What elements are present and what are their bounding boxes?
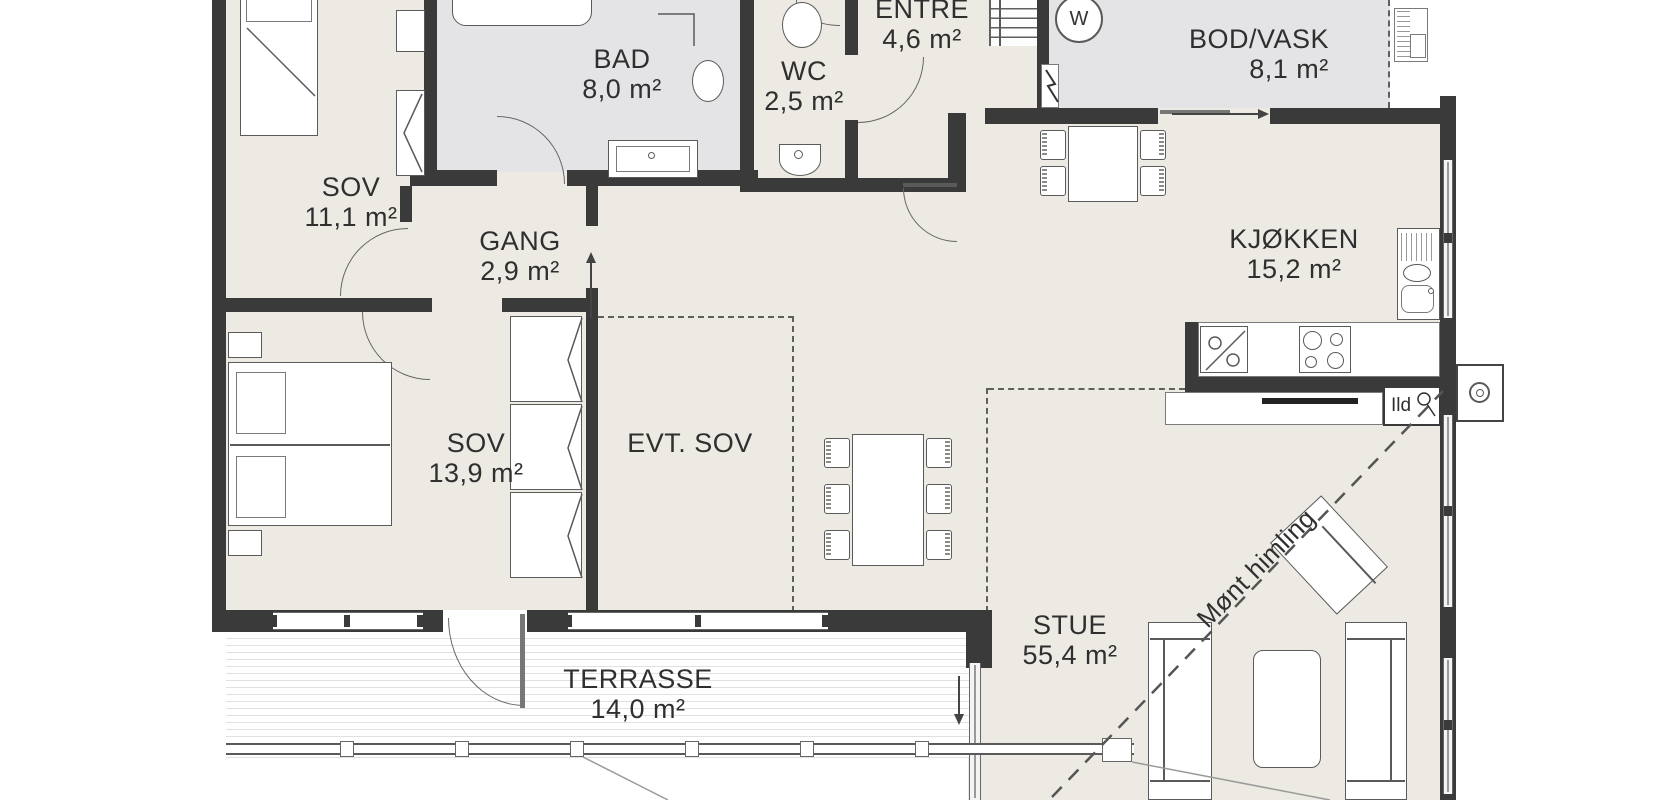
- burner: [1327, 352, 1344, 369]
- room-area: 13,9 m²: [428, 458, 523, 488]
- room-area: 11,1 m²: [304, 202, 397, 232]
- terrasse-arrow-line: [958, 676, 960, 716]
- terrasse-arrow-head: [954, 714, 964, 725]
- sofa-arm: [1347, 638, 1405, 640]
- window-mullion: [566, 615, 572, 627]
- wall-sov-divider-b: [502, 298, 586, 312]
- dresser: [396, 10, 425, 52]
- floor-plan: W Ild: [0, 0, 1670, 800]
- room-name: GANG: [479, 226, 561, 256]
- evt-sov-dashed-top: [598, 316, 794, 318]
- wardrobe: [396, 90, 425, 176]
- chair: [824, 438, 850, 468]
- chair: [1140, 130, 1166, 160]
- sofa-arm: [1150, 780, 1210, 782]
- washing-machine-label: W: [1070, 8, 1089, 31]
- wall-wc-east-bottom: [845, 120, 858, 192]
- railing-post: [570, 741, 584, 757]
- laundry-basin: [1410, 34, 1426, 58]
- nightstand: [228, 530, 262, 556]
- sink-drainer: [1401, 233, 1436, 261]
- wc-sink: [779, 144, 821, 176]
- room-label-sov2: SOV 13,9 m²: [428, 428, 523, 488]
- sofa-back: [1163, 640, 1165, 782]
- wall-kitchen-stub: [1185, 322, 1198, 392]
- wall-sov-divider-a: [218, 298, 432, 312]
- gang-arrow-line: [590, 262, 592, 318]
- fireplace-hearth: Ild: [1383, 386, 1441, 426]
- room-name: EVT. SOV: [627, 428, 753, 458]
- room-name: WC: [764, 56, 844, 86]
- room-name: BAD: [582, 44, 662, 74]
- railing-end-post: [1102, 738, 1132, 762]
- room-name: BOD/VASK: [1189, 24, 1329, 54]
- room-area: 2,9 m²: [479, 256, 561, 286]
- room-label-kjokken: KJØKKEN 15,2 m²: [1229, 224, 1359, 284]
- glazing-line: [974, 665, 976, 798]
- wall-stue-corner: [966, 610, 992, 668]
- window-mullion: [695, 615, 701, 627]
- sofa: [1345, 622, 1407, 800]
- sofa-back: [1390, 640, 1392, 782]
- wall-hall-west: [948, 113, 966, 178]
- wardrobe: [510, 316, 582, 402]
- burner: [1303, 331, 1322, 350]
- chair: [824, 530, 850, 560]
- bed-pillow: [236, 372, 286, 434]
- wall-gang-stub: [586, 186, 598, 226]
- sofa: [1148, 622, 1212, 800]
- room-area: 8,1 m²: [1219, 54, 1359, 84]
- room-name: KJØKKEN: [1229, 224, 1359, 254]
- dining-table: [852, 434, 924, 566]
- room-label-sov1: SOV 11,1 m²: [304, 172, 397, 232]
- chair: [1040, 130, 1066, 160]
- terrasse-railing: [226, 743, 1134, 755]
- toilet: [782, 2, 822, 48]
- wall-wc-east-top: [845, 0, 858, 55]
- window-mullion: [344, 615, 350, 627]
- sink-basin-round: [1403, 264, 1431, 282]
- bed-pillow: [246, 0, 312, 22]
- wall-bod-kitchen-a: [985, 108, 1158, 124]
- kitchen-stue-dashed: [988, 388, 1185, 390]
- wall-sov1-gang: [400, 186, 412, 222]
- coffee-table: [1253, 650, 1321, 768]
- room-label-bad: BAD 8,0 m²: [582, 44, 662, 104]
- window-mullion: [417, 615, 423, 627]
- wardrobe: [510, 492, 582, 578]
- bed-split: [230, 444, 390, 446]
- bathtub: [452, 0, 592, 26]
- washbasin: [692, 60, 724, 102]
- room-label-entre: ENTRE 4,6 m²: [875, 0, 969, 54]
- evt-sov-dashed-right: [792, 316, 794, 612]
- dishwasher: [1200, 326, 1248, 373]
- room-name: TERRASSE: [563, 664, 713, 694]
- room-area: 8,0 m²: [582, 74, 662, 104]
- wall-wc-west: [740, 0, 754, 186]
- staircase: [989, 0, 1037, 46]
- room-name: SOV: [428, 428, 523, 458]
- room-label-bod-vask: BOD/VASK 8,1 m²: [1189, 24, 1329, 84]
- room-name: ENTRE: [875, 0, 969, 24]
- window-mullion: [271, 615, 277, 627]
- door-leaf-terrasse: [520, 614, 525, 708]
- room-name: SOV: [304, 172, 397, 202]
- railing-post: [800, 741, 814, 757]
- room-area: 15,2 m²: [1229, 254, 1359, 284]
- terrasse-step-line: [583, 757, 668, 800]
- fireplace-label: Ild: [1391, 395, 1411, 417]
- nightstand: [228, 332, 262, 358]
- chair: [926, 438, 952, 468]
- burner: [1330, 333, 1343, 346]
- room-area: 55,4 m²: [1022, 640, 1117, 670]
- burner: [1305, 356, 1317, 368]
- wall-bod-kitchen-b: [1270, 108, 1456, 124]
- wall-gang-east: [586, 288, 598, 612]
- room-area: 4,6 m²: [875, 24, 969, 54]
- window-mullion: [1444, 720, 1452, 730]
- tv: [1262, 398, 1358, 404]
- chair: [824, 484, 850, 514]
- chimney-flue-inner: [1476, 389, 1484, 397]
- chair: [1140, 166, 1166, 196]
- vanity-top: [616, 146, 690, 172]
- laundry-bench-drainer: [1397, 11, 1410, 59]
- electrical-panel: [1041, 64, 1059, 108]
- sofa-arm: [1347, 780, 1405, 782]
- kitchen-table: [1068, 126, 1138, 202]
- chair: [926, 484, 952, 514]
- sliding-door-arrow-head: [1258, 109, 1269, 119]
- wc-sink-tap: [794, 150, 803, 159]
- room-label-evt-sov: EVT. SOV: [627, 428, 753, 458]
- sliding-door-arrow-line: [1172, 113, 1258, 115]
- sofa-arm: [1150, 638, 1210, 640]
- railing-post: [455, 741, 469, 757]
- wall-west: [212, 0, 226, 632]
- window-mullion: [822, 615, 828, 627]
- tv-bench: [1165, 392, 1383, 425]
- sink-tap: [1428, 288, 1434, 294]
- wall-bad-west: [424, 0, 437, 172]
- room-area: 2,5 m²: [764, 86, 844, 116]
- room-label-gang: GANG 2,9 m²: [479, 226, 561, 286]
- railing-post: [340, 741, 354, 757]
- room-label-stue: STUE 55,4 m²: [1022, 610, 1117, 670]
- room-label-wc: WC 2,5 m²: [764, 56, 844, 116]
- room-area: 14,0 m²: [563, 694, 713, 724]
- vanity-drain: [648, 152, 655, 159]
- chair: [1040, 166, 1066, 196]
- bod-vask-dashed-east: [1388, 0, 1390, 108]
- room-name: STUE: [1022, 610, 1117, 640]
- stair-rail: [999, 0, 1001, 46]
- railing-post: [915, 741, 929, 757]
- window-mullion: [1444, 233, 1452, 243]
- railing-post: [685, 741, 699, 757]
- chair: [926, 530, 952, 560]
- window-mullion: [1444, 506, 1452, 516]
- door-leaf-hall-kitchen: [903, 183, 957, 187]
- gang-arrow-head: [586, 252, 596, 263]
- bed-pillow: [236, 456, 286, 518]
- hall-stue-dashed: [986, 388, 988, 612]
- room-label-terrasse: TERRASSE 14,0 m²: [563, 664, 713, 724]
